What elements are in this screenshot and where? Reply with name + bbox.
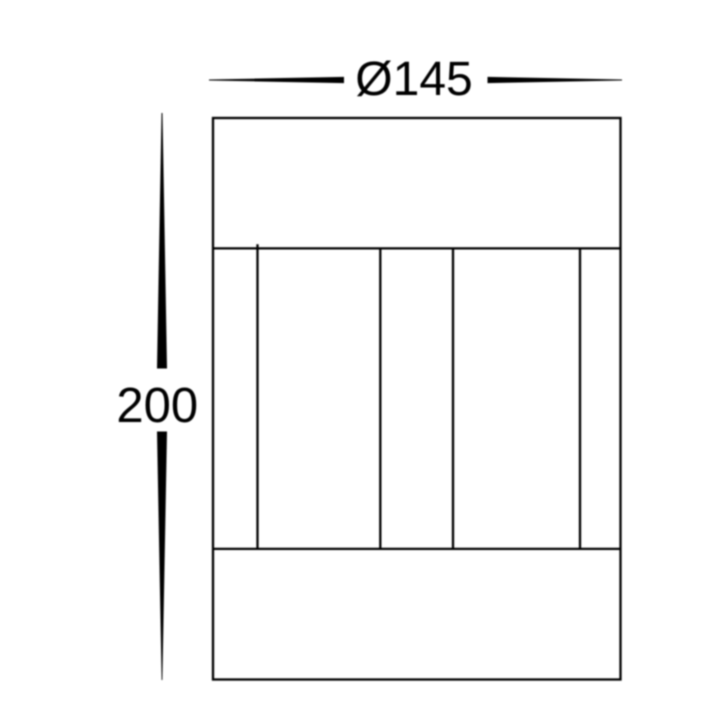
svg-text:Ø145: Ø145 [355,53,472,106]
svg-text:200: 200 [116,379,198,433]
